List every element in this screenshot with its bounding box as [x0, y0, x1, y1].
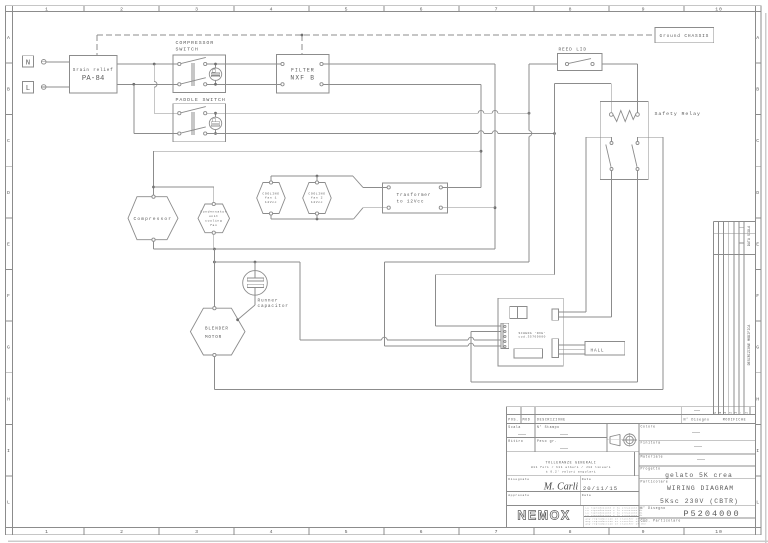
svg-text:Trasformer: Trasformer — [397, 193, 432, 198]
svg-text:POS.: POS. — [508, 417, 518, 421]
svg-text:NEMOX: NEMOX — [517, 509, 570, 523]
svg-text:Disegnato: Disegnato — [508, 477, 529, 481]
svg-text:N° Stampo: N° Stampo — [537, 425, 560, 429]
svg-text:5: 5 — [713, 412, 717, 414]
svg-text:2: 2 — [728, 412, 732, 414]
svg-text:L: L — [7, 499, 11, 505]
svg-text:F: F — [756, 293, 760, 299]
svg-text:9: 9 — [642, 6, 646, 12]
svg-text:5Ksc 230V (CBTR): 5Ksc 230V (CBTR) — [660, 498, 739, 505]
svg-text:fan 2: fan 2 — [311, 196, 323, 200]
svg-text:L: L — [756, 499, 760, 505]
svg-text:unit: unit — [209, 214, 219, 218]
svg-text:8: 8 — [569, 529, 573, 535]
svg-text:1: 1 — [45, 6, 49, 12]
svg-text:COMPRESSOR: COMPRESSOR — [176, 40, 215, 46]
svg-text:12Vcc: 12Vcc — [311, 200, 323, 204]
svg-text:H: H — [7, 396, 11, 402]
svg-text:20/11/15: 20/11/15 — [583, 485, 618, 492]
svg-text:G: G — [7, 345, 11, 351]
svg-text:MODIFICHE: MODIFICHE — [723, 417, 746, 421]
svg-text:4: 4 — [718, 412, 722, 414]
svg-text:2: 2 — [120, 529, 124, 535]
svg-text:fan: fan — [210, 223, 217, 227]
svg-text:Scala: Scala — [508, 425, 521, 429]
svg-text:I: I — [756, 448, 760, 454]
svg-text:-: - — [739, 412, 743, 414]
svg-text:NXF B: NXF B — [290, 75, 315, 82]
svg-text:6: 6 — [420, 6, 424, 12]
svg-text:Condensator: Condensator — [200, 210, 227, 214]
svg-text:Finitura: Finitura — [641, 441, 661, 445]
svg-text:N° Disegno: N° Disegno — [641, 506, 666, 510]
svg-text:F: F — [7, 293, 11, 299]
svg-text:Cod. Particolare: Cod. Particolare — [641, 519, 681, 523]
svg-text:L: L — [26, 85, 30, 93]
svg-text:7: 7 — [495, 529, 499, 535]
svg-text:E: E — [7, 241, 11, 247]
svg-text:4: 4 — [270, 6, 274, 12]
svg-text:2: 2 — [745, 412, 749, 414]
svg-text:P5204000: P5204000 — [683, 509, 740, 519]
svg-text:COOLING: COOLING — [308, 191, 325, 195]
svg-text:C: C — [756, 138, 760, 144]
svg-text:SCHEDA 'NXE': SCHEDA 'NXE' — [519, 331, 546, 335]
svg-text:Ground CHASSIS: Ground CHASSIS — [660, 33, 710, 39]
svg-text:SWITCH: SWITCH — [176, 47, 199, 53]
svg-text:Ritiro: Ritiro — [508, 439, 523, 443]
svg-text:REED LID: REED LID — [559, 47, 587, 53]
svg-text:2: 2 — [120, 6, 124, 12]
svg-text:Progetto: Progetto — [641, 467, 661, 471]
svg-text:Materiale: Materiale — [641, 454, 664, 458]
svg-text:Peso gr.: Peso gr. — [537, 439, 557, 443]
svg-text:G: G — [756, 345, 760, 351]
svg-text:BLENDER: BLENDER — [205, 327, 229, 332]
svg-text:Any reproduction or transfer o: Any reproduction or transfer of the — [586, 523, 647, 526]
svg-text:N: N — [26, 59, 30, 67]
svg-text:B: B — [7, 87, 11, 93]
svg-text:FILTER: FILTER — [291, 68, 315, 74]
svg-text:1: 1 — [733, 412, 737, 414]
svg-text:gelato 5K crea: gelato 5K crea — [665, 472, 733, 479]
svg-text:D: D — [756, 190, 760, 196]
svg-text:8: 8 — [569, 6, 573, 12]
svg-text:COOLING: COOLING — [262, 191, 279, 195]
svg-text:cod.35709000: cod.35709000 — [519, 335, 546, 339]
svg-text:12Vcc: 12Vcc — [265, 200, 277, 204]
svg-text:± 0.2' valori angolari: ± 0.2' valori angolari — [546, 470, 596, 474]
svg-text:A: A — [756, 35, 760, 41]
svg-text:E: E — [756, 241, 760, 247]
svg-text:9: 9 — [642, 529, 646, 535]
svg-text:I: I — [7, 448, 11, 454]
svg-text:5: 5 — [345, 6, 349, 12]
svg-text:1: 1 — [45, 529, 49, 535]
svg-text:C: C — [7, 138, 11, 144]
svg-text:fan 1: fan 1 — [265, 196, 277, 200]
svg-text:Compressor: Compressor — [134, 216, 173, 222]
svg-text:Srain relief: Srain relief — [73, 68, 114, 73]
svg-text:DATA SIGLA: DATA SIGLA — [748, 225, 752, 246]
svg-text:to 12Vcc: to 12Vcc — [397, 200, 425, 205]
svg-text:DESCRIZIONE: DESCRIZIONE — [537, 417, 566, 421]
svg-text:TOLLERANZE GENERALI: TOLLERANZE GENERALI — [545, 462, 596, 466]
svg-text:capacitor: capacitor — [258, 304, 289, 309]
svg-text:7: 7 — [495, 6, 499, 12]
svg-text:5: 5 — [345, 529, 349, 535]
svg-text:PA-84: PA-84 — [82, 75, 105, 83]
svg-text:3: 3 — [723, 412, 727, 414]
svg-text:MOD: MOD — [523, 417, 531, 421]
svg-text:Data: Data — [582, 494, 591, 497]
svg-text:6: 6 — [420, 529, 424, 535]
svg-text:3: 3 — [195, 529, 199, 535]
svg-text:3: 3 — [195, 6, 199, 12]
svg-text:cooling: cooling — [205, 218, 222, 222]
svg-text:10: 10 — [715, 6, 723, 12]
svg-text:DESCRIZIONE MODIFICA: DESCRIZIONE MODIFICA — [748, 324, 752, 366]
svg-text:MOTOR: MOTOR — [205, 335, 222, 340]
svg-text:Data: Data — [582, 478, 591, 481]
svg-text:D: D — [7, 190, 11, 196]
svg-text:H11 fori / h11 alberi / J14 li: H11 fori / h11 alberi / J14 lineari — [531, 465, 611, 469]
svg-text:Colore: Colore — [641, 424, 656, 428]
svg-text:Approvato: Approvato — [508, 494, 529, 497]
svg-text:Particolare: Particolare — [641, 479, 669, 483]
svg-text:HALL: HALL — [591, 348, 605, 353]
svg-text:10: 10 — [715, 529, 723, 535]
svg-text:B: B — [756, 87, 760, 93]
svg-text:4: 4 — [270, 529, 274, 535]
svg-text:PADDLE SWITCH: PADDLE SWITCH — [176, 97, 226, 103]
svg-text:H: H — [756, 396, 760, 402]
svg-text:WIRING DIAGRAM: WIRING DIAGRAM — [667, 485, 734, 492]
svg-text:M. Carli: M. Carli — [543, 482, 579, 493]
svg-text:Safety Relay: Safety Relay — [655, 111, 701, 117]
svg-text:N° Disegno: N° Disegno — [684, 417, 710, 421]
svg-text:Runner: Runner — [258, 299, 279, 304]
svg-text:A: A — [7, 35, 11, 41]
